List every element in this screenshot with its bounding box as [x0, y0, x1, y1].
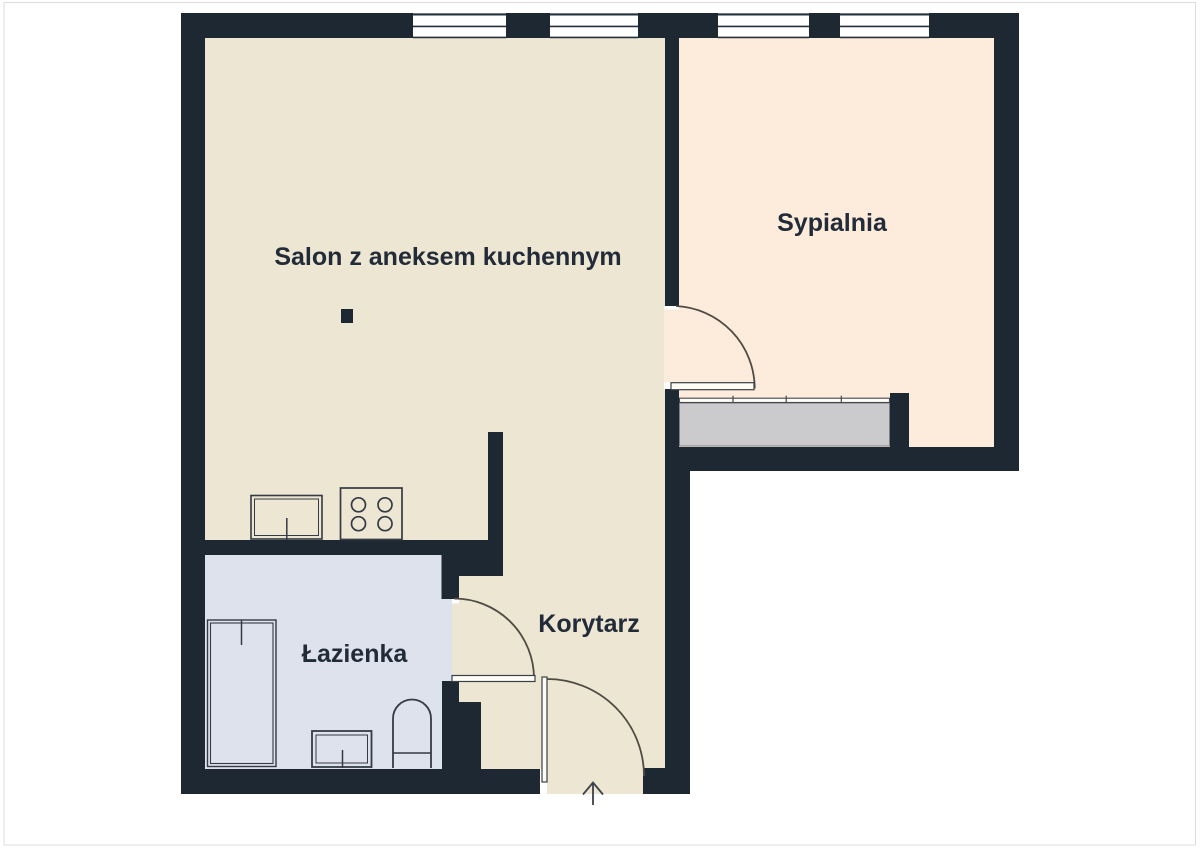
svg-text:Łazienka: Łazienka — [302, 640, 409, 668]
svg-text:Sypialnia: Sypialnia — [777, 209, 888, 237]
svg-text:Salon z aneksem kuchennym: Salon z aneksem kuchennym — [274, 243, 621, 271]
svg-text:Korytarz: Korytarz — [538, 610, 639, 638]
